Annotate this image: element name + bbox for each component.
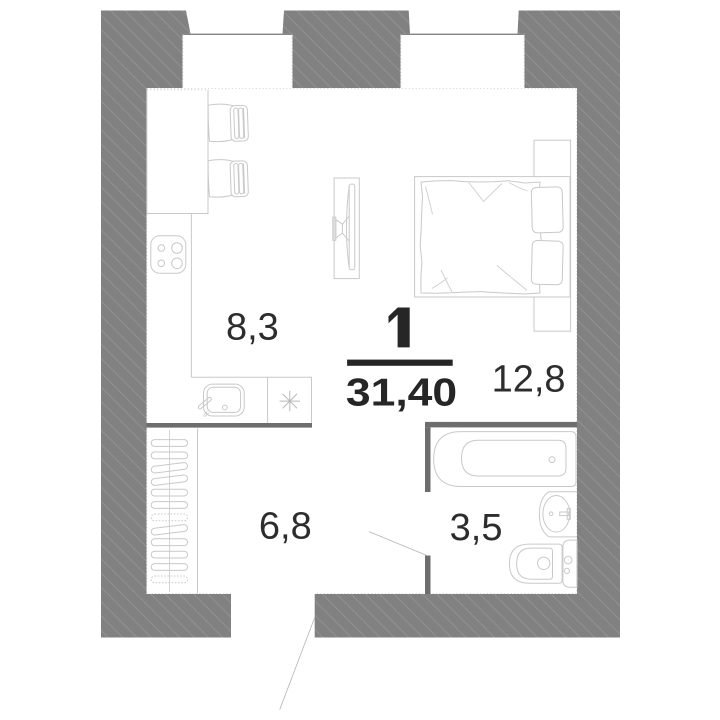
svg-text:8,3: 8,3 — [226, 306, 279, 348]
svg-text:12,8: 12,8 — [492, 359, 566, 401]
svg-text:6,8: 6,8 — [259, 505, 312, 547]
svg-text:3,5: 3,5 — [450, 507, 503, 549]
svg-text:31,40: 31,40 — [346, 371, 457, 415]
